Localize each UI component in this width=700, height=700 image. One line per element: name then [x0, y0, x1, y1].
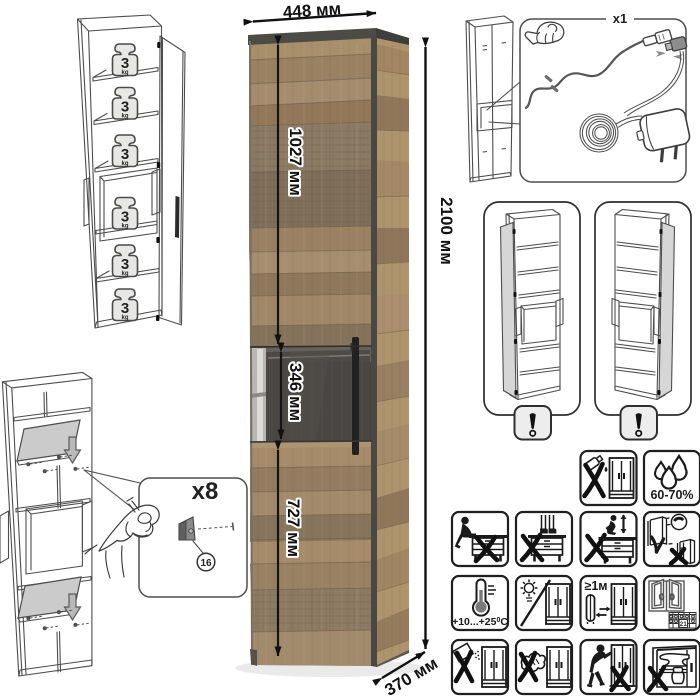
svg-text:+10...+250С: +10...+250С: [452, 616, 508, 628]
svg-text:2100 мм: 2100 мм: [437, 197, 456, 265]
svg-text:≥1м: ≥1м: [585, 579, 608, 593]
svg-text:21: 21: [680, 621, 688, 628]
svg-text:346 мм: 346 мм: [286, 363, 305, 421]
svg-text:1027 мм: 1027 мм: [286, 128, 305, 196]
svg-text:727 мм: 727 мм: [284, 499, 303, 557]
svg-text:16: 16: [200, 558, 212, 569]
svg-text:x1: x1: [613, 11, 627, 26]
svg-text:60-70%: 60-70%: [650, 488, 693, 502]
svg-text:448 мм: 448 мм: [282, 0, 341, 22]
svg-text:x8: x8: [192, 478, 219, 505]
